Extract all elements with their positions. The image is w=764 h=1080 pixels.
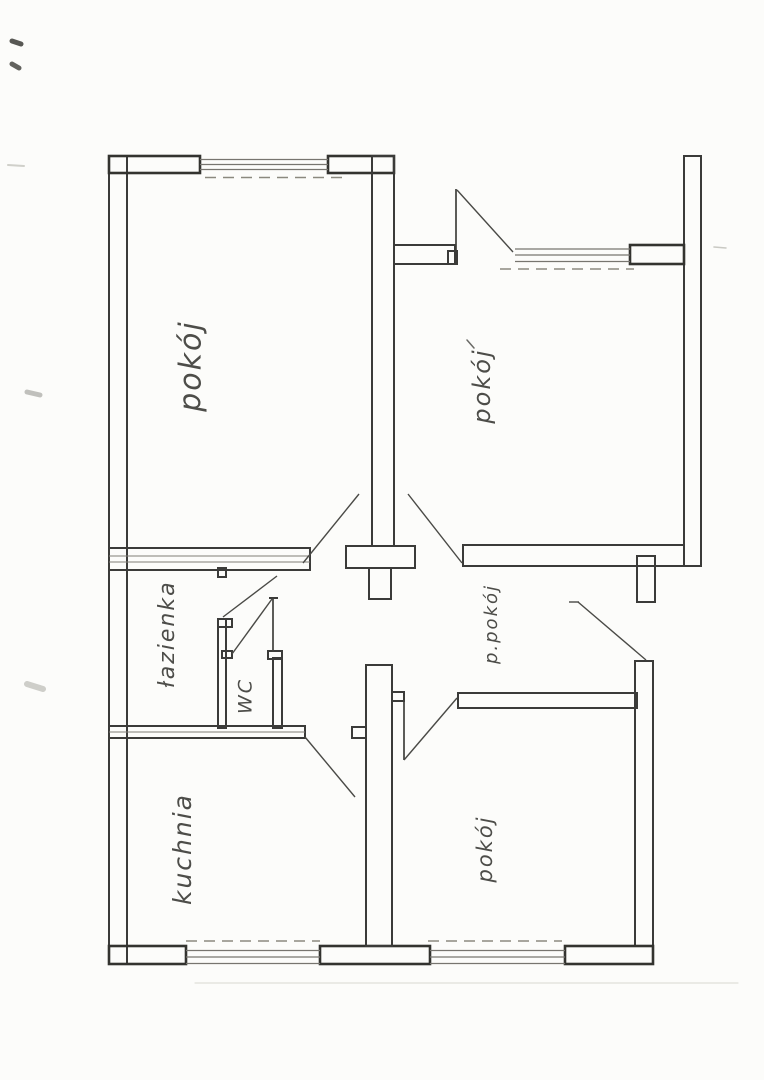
wall-bottom-segment-3	[565, 946, 653, 964]
wall-left-outer	[109, 156, 127, 964]
window-top-right-room	[500, 249, 634, 269]
wall-cross-stub	[369, 568, 391, 599]
door-bottom-right-room	[404, 696, 457, 760]
door-wc	[232, 598, 273, 654]
wall-cross-flange	[346, 546, 415, 568]
wall-leftroom-bottom	[109, 548, 310, 570]
wall-central-divider	[372, 156, 394, 546]
wall-bottomroomdoor-stub	[392, 692, 404, 701]
scan-mark-left-edge-1	[27, 392, 40, 395]
wall-top-right-segment	[328, 156, 394, 173]
window-kitchen	[186, 941, 320, 964]
wall-wc-right	[273, 658, 282, 728]
door-top-left-room	[303, 494, 359, 563]
door-entrance	[569, 602, 646, 660]
wall-rightroom-top-right	[630, 245, 684, 264]
room-labels: pokój pokój p.pokój łazienka WC kuchnia …	[155, 320, 502, 905]
door-top-right-room	[408, 494, 462, 563]
door-balcony	[456, 189, 513, 252]
room-label-bottom-right: pokój	[473, 815, 497, 883]
outer-walls	[109, 156, 701, 964]
window-bottom-right-room	[428, 941, 565, 964]
wall-bottom-segment-2	[320, 946, 430, 964]
wall-bottom-segment-1	[109, 946, 186, 964]
floorplan-drawing: pokój pokój p.pokój łazienka WC kuchnia …	[0, 0, 764, 1080]
room-label-hallway: p.pokój	[481, 584, 502, 665]
door-kitchen	[305, 737, 355, 797]
doors	[223, 189, 646, 797]
scan-mark-top-left-1	[12, 41, 21, 44]
pencil-tick-right-room	[467, 340, 474, 348]
door-bathroom	[223, 576, 277, 617]
room-label-kitchen: kuchnia	[168, 793, 197, 905]
wall-entrance-upper	[637, 556, 655, 602]
window-top-left-room	[200, 160, 342, 178]
wall-top-left-segment	[109, 156, 200, 173]
room-label-top-right: pokój	[468, 348, 496, 424]
scan-mark-left-edge-2	[27, 684, 43, 689]
scan-smudge-right	[714, 247, 726, 248]
scan-smudge-corner	[8, 165, 24, 166]
room-label-top-left: pokój	[174, 320, 209, 412]
scanned-floorplan-page: pokój pokój p.pokój łazienka WC kuchnia …	[0, 0, 764, 1080]
wall-right-outer-upper	[684, 156, 701, 566]
wall-bottomroom-top	[458, 693, 637, 708]
wall-kitchendoor-stub	[352, 727, 366, 738]
scan-mark-top-left-2	[12, 64, 19, 68]
room-label-bathroom: łazienka	[155, 580, 180, 687]
wall-bathroom-right-lower	[218, 619, 226, 728]
wall-central-lower	[366, 665, 392, 946]
room-label-wc: WC	[235, 678, 257, 714]
wall-rightroom-top-left	[394, 245, 455, 264]
